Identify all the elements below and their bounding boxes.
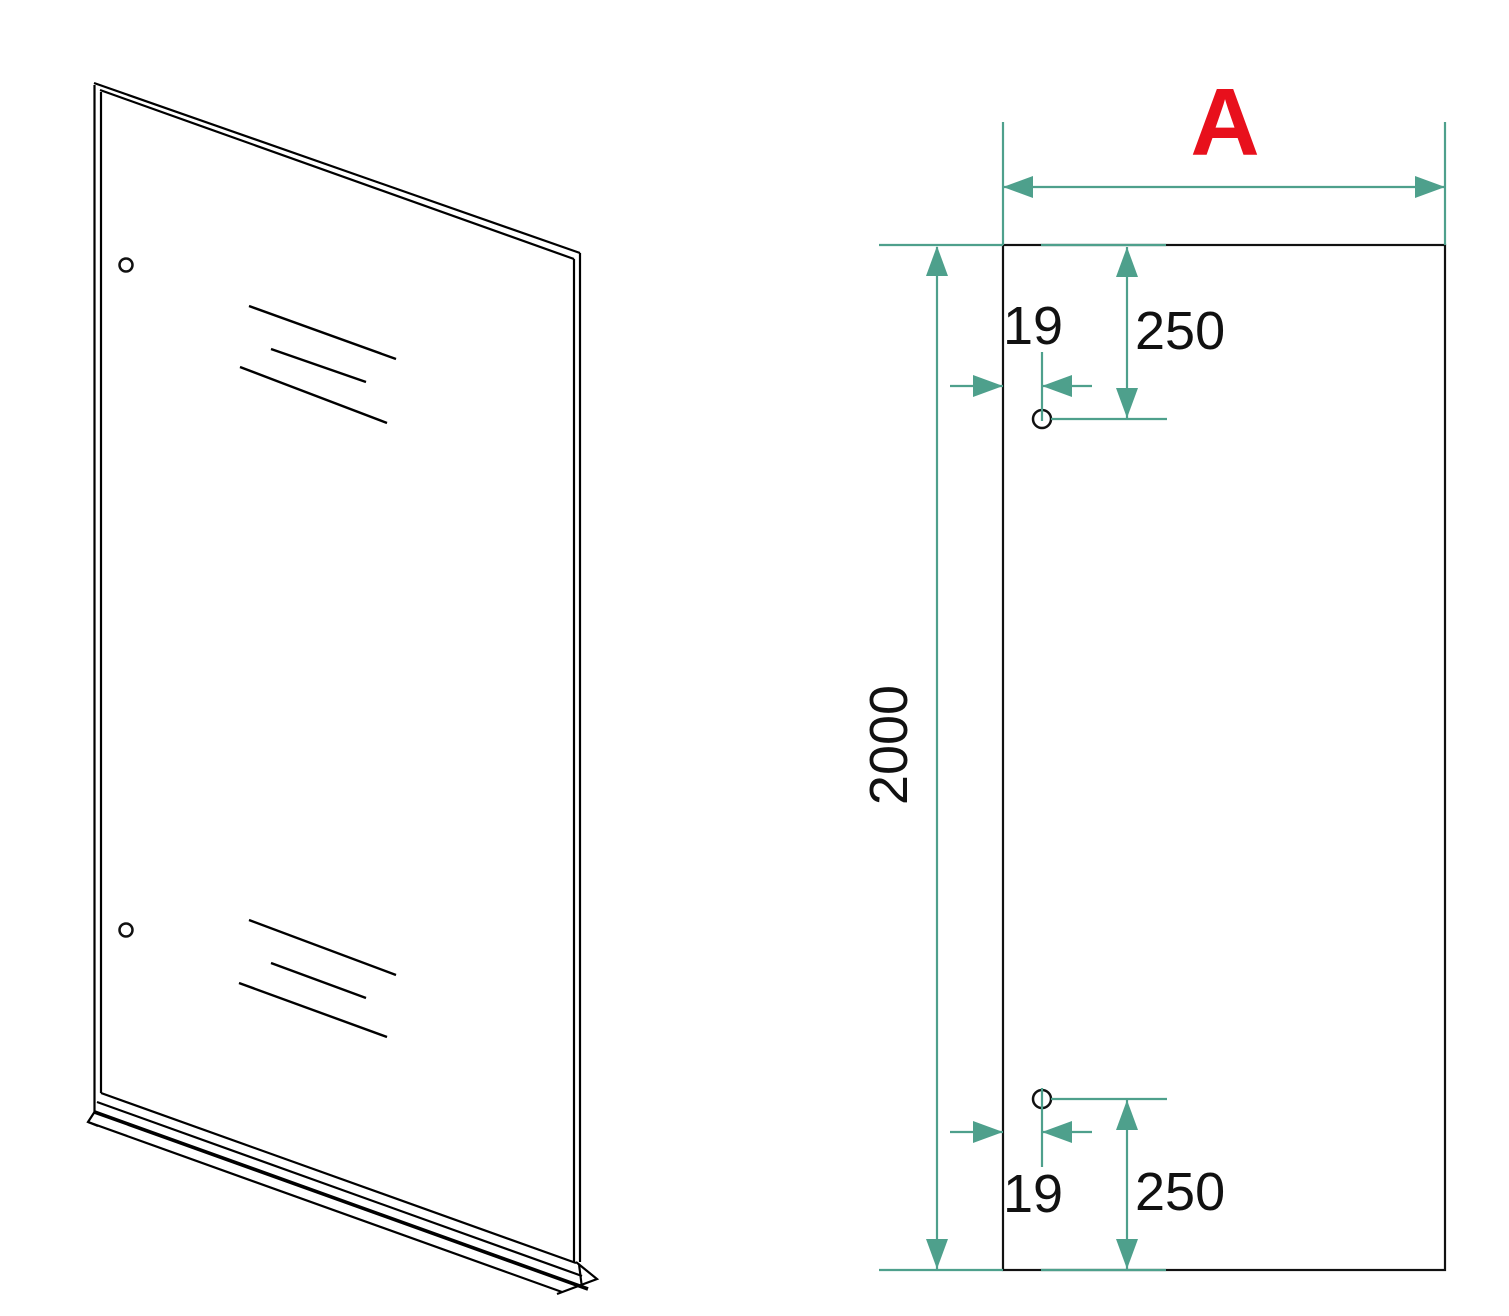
reflection-line — [271, 963, 366, 998]
height-dim-text: 2000 — [859, 685, 919, 805]
base-second-line — [97, 1102, 582, 1276]
arrowhead-left — [1042, 1121, 1072, 1143]
panel-top-edge-outer — [94, 83, 580, 253]
dim250-bottom-text: 250 — [1135, 1162, 1225, 1222]
panel-front-rect — [1003, 245, 1445, 1270]
mounting-hole-bottom-iso — [120, 924, 133, 937]
reflection-line — [239, 983, 387, 1037]
arrowhead-down — [1116, 388, 1138, 418]
reflection-lines-top — [240, 306, 396, 423]
front-view: A 2000 19 — [859, 69, 1445, 1270]
glass-panel-outline — [94, 83, 580, 1262]
arrowhead-up — [1116, 1100, 1138, 1130]
arrowhead-right — [973, 375, 1003, 397]
reflection-line — [240, 367, 387, 423]
arrowhead-down — [1116, 1239, 1138, 1269]
arrowhead-right — [973, 1121, 1003, 1143]
reflection-line — [271, 349, 366, 382]
base-right-foot — [557, 1262, 597, 1294]
width-label-a: A — [1190, 69, 1259, 176]
reflection-lines-bottom — [239, 920, 396, 1037]
dim-width-a: A — [1003, 69, 1445, 245]
dim-top-hole: 19 250 — [950, 247, 1225, 421]
glass-panel-technical-drawing: A 2000 19 — [0, 0, 1509, 1316]
dim250-top-text: 250 — [1135, 301, 1225, 361]
dim-bottom-hole: 19 250 — [950, 1088, 1225, 1269]
arrowhead-left — [1042, 375, 1072, 397]
base-bottom-line — [88, 1122, 562, 1292]
reflection-line — [249, 306, 396, 359]
arrowhead-left — [1003, 176, 1033, 198]
dim19-bottom-text: 19 — [1003, 1164, 1063, 1224]
arrowhead-up — [1116, 247, 1138, 277]
technical-drawing-page: A 2000 19 — [0, 0, 1509, 1316]
mounting-hole-top-iso — [120, 259, 133, 272]
base-bar — [88, 1093, 597, 1294]
iso-view — [88, 83, 597, 1294]
arrowhead-up — [926, 246, 948, 276]
base-top-line — [101, 1093, 576, 1263]
reflection-line — [249, 920, 396, 975]
dim19-top-text: 19 — [1003, 296, 1063, 356]
arrowhead-right — [1415, 176, 1445, 198]
arrowhead-down — [926, 1239, 948, 1269]
base-dark-line — [95, 1112, 589, 1289]
panel-top-edge-inner — [100, 90, 574, 259]
